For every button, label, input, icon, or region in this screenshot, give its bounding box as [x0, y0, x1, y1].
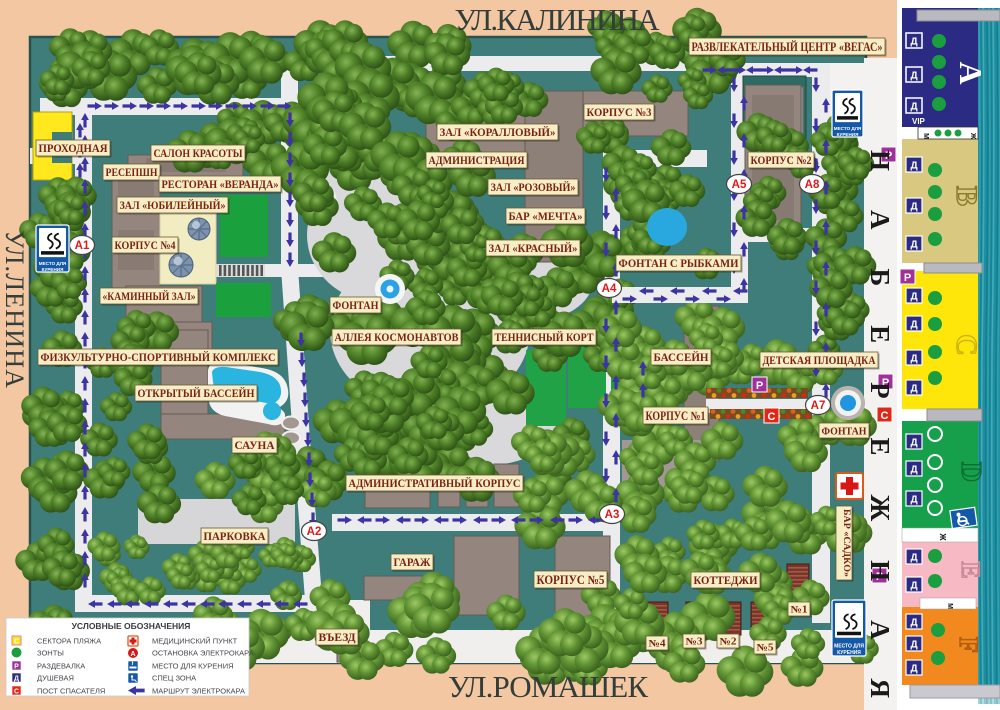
svg-text:КОРПУС №1: КОРПУС №1 — [646, 409, 706, 423]
svg-text:А: А — [953, 61, 989, 84]
svg-text:Ж: Ж — [938, 532, 947, 541]
svg-text:УЛ.ЛЕНИНА: УЛ.ЛЕНИНА — [0, 230, 29, 388]
svg-text:С: С — [14, 688, 19, 695]
svg-text:ЗАЛ «КРАСНЫЙ»: ЗАЛ «КРАСНЫЙ» — [489, 241, 578, 255]
svg-text:VIP: VIP — [912, 117, 926, 126]
svg-text:Ж: Ж — [969, 132, 976, 140]
svg-text:Е: Е — [956, 561, 985, 578]
svg-text:№2: №2 — [720, 637, 737, 648]
svg-text:БАР «САДКО»: БАР «САДКО» — [841, 509, 851, 577]
svg-text:Д: Д — [910, 37, 917, 48]
svg-text:ПАРКОВКА: ПАРКОВКА — [204, 531, 267, 543]
svg-text:А1: А1 — [75, 240, 90, 252]
svg-text:ФОНТАН: ФОНТАН — [333, 300, 379, 312]
svg-text:УСЛОВНЫЕ ОБОЗНАЧЕНИЯ: УСЛОВНЫЕ ОБОЗНАЧЕНИЯ — [72, 621, 191, 631]
svg-text:ЗАЛ «ЮБИЛЕЙНЫЙ»: ЗАЛ «ЮБИЛЕЙНЫЙ» — [120, 198, 226, 212]
svg-text:КУРЕНИЯ: КУРЕНИЯ — [42, 267, 64, 272]
svg-text:ФИЗКУЛЬТУРНО-СПОРТИВНЫЙ КОМПЛЕ: ФИЗКУЛЬТУРНО-СПОРТИВНЫЙ КОМПЛЕКС — [41, 350, 276, 364]
svg-text:М: М — [922, 133, 929, 139]
svg-text:КОРПУС №3: КОРПУС №3 — [587, 107, 652, 119]
svg-text:РЕСТОРАН «ВЕРАНДА»: РЕСТОРАН «ВЕРАНДА» — [162, 179, 279, 191]
svg-text:Д: Д — [910, 664, 917, 675]
svg-text:ЗАЛ «КОРАЛЛОВЫЙ»: ЗАЛ «КОРАЛЛОВЫЙ» — [440, 125, 556, 139]
svg-text:Р: Р — [14, 663, 19, 670]
svg-text:Д: Д — [910, 161, 917, 172]
svg-text:ЗОНТЫ: ЗОНТЫ — [37, 649, 64, 658]
svg-text:С: С — [768, 411, 776, 423]
svg-text:«КАМИННЫЙ ЗАЛ»: «КАМИННЫЙ ЗАЛ» — [103, 289, 196, 303]
svg-text:РАЗДЕВАЛКА: РАЗДЕВАЛКА — [37, 662, 85, 671]
svg-text:АЛЛЕЯ КОСМОНАВТОВ: АЛЛЕЯ КОСМОНАВТОВ — [335, 332, 459, 344]
svg-text:МЕДИЦИНСКИЙ ПУНКТ: МЕДИЦИНСКИЙ ПУНКТ — [152, 637, 238, 646]
svg-text:Д: Д — [910, 618, 917, 629]
svg-text:Д: Д — [910, 581, 917, 592]
svg-text:САУНА: САУНА — [235, 440, 276, 452]
svg-text:МЕСТО ДЛЯ КУРЕНИЯ: МЕСТО ДЛЯ КУРЕНИЯ — [152, 662, 234, 671]
svg-text:Д: Д — [910, 354, 917, 365]
svg-text:Д: Д — [910, 495, 917, 506]
svg-text:АДМИНИСТРАТИВНЫЙ КОРПУС: АДМИНИСТРАТИВНЫЙ КОРПУС — [349, 476, 521, 490]
svg-text:А4: А4 — [602, 283, 617, 295]
svg-text:ДЕТСКАЯ ПЛОЩАДКА: ДЕТСКАЯ ПЛОЩАДКА — [763, 355, 877, 367]
svg-text:ОСТАНОВКА ЭЛЕКТРОКАРА: ОСТАНОВКА ЭЛЕКТРОКАРА — [152, 649, 254, 658]
svg-text:D: D — [955, 462, 986, 482]
svg-text:А2: А2 — [307, 526, 322, 538]
svg-text:САЛОН КРАСОТЫ: САЛОН КРАСОТЫ — [154, 148, 244, 160]
svg-text:ПОСТ СПАСАТЕЛЯ: ПОСТ СПАСАТЕЛЯ — [37, 687, 105, 696]
svg-text:Д: Д — [910, 553, 917, 564]
svg-text:Д: Д — [910, 102, 917, 113]
svg-text:С: С — [881, 410, 889, 422]
svg-text:МЕСТО ДЛЯ: МЕСТО ДЛЯ — [834, 643, 864, 649]
svg-text:№4: №4 — [649, 639, 666, 650]
svg-text:КОРПУС №2: КОРПУС №2 — [751, 155, 812, 167]
svg-text:ТЕННИСНЫЙ КОРТ: ТЕННИСНЫЙ КОРТ — [495, 330, 594, 344]
svg-text:Д: Д — [910, 384, 917, 395]
svg-text:МЕСТО ДЛЯ: МЕСТО ДЛЯ — [39, 261, 66, 266]
svg-text:КОРПУС №4: КОРПУС №4 — [115, 240, 176, 252]
svg-text:ДУШЕВАЯ: ДУШЕВАЯ — [37, 674, 74, 683]
svg-text:КОТТЕДЖИ: КОТТЕДЖИ — [694, 575, 758, 587]
svg-text:А8: А8 — [805, 179, 820, 191]
svg-text:А3: А3 — [605, 509, 620, 521]
svg-text:М: М — [946, 603, 953, 609]
svg-text:РЕСЕПШН: РЕСЕПШН — [106, 167, 158, 179]
svg-text:Д: Д — [910, 71, 917, 82]
svg-text:РАЗВЛЕКАТЕЛЬНЫЙ ЦЕНТР «ВЕГАС»: РАЗВЛЕКАТЕЛЬНЫЙ ЦЕНТР «ВЕГАС» — [692, 40, 883, 54]
svg-text:ЗАЛ «РОЗОВЫЙ»: ЗАЛ «РОЗОВЫЙ» — [491, 180, 576, 194]
svg-text:БАР «МЕЧТА»: БАР «МЕЧТА» — [509, 211, 583, 223]
svg-text:Д: Д — [910, 292, 917, 303]
svg-text:МЕСТО ДЛЯ: МЕСТО ДЛЯ — [834, 126, 861, 131]
svg-text:А7: А7 — [811, 400, 826, 412]
svg-text:№1: №1 — [791, 605, 808, 616]
svg-text:Д: Д — [910, 640, 917, 651]
svg-text:Д: Д — [14, 675, 19, 682]
svg-text:№3: №3 — [686, 637, 703, 648]
svg-text:Р: Р — [756, 380, 763, 392]
svg-text:Р: Р — [904, 272, 911, 284]
svg-text:ФОНТАН: ФОНТАН — [822, 426, 867, 437]
svg-text:Д: Д — [910, 202, 917, 213]
svg-text:Д: Д — [910, 320, 917, 331]
svg-text:ВЪЕЗД: ВЪЕЗД — [319, 632, 356, 644]
svg-text:Д: Д — [910, 240, 917, 251]
svg-text:КОРПУС №5: КОРПУС №5 — [537, 573, 605, 587]
svg-text:ФОНТАН С РЫБКАМИ: ФОНТАН С РЫБКАМИ — [619, 258, 739, 270]
svg-text:УЛ.РОМАШЕК: УЛ.РОМАШЕК — [448, 669, 648, 704]
svg-text:ПРОХОДНАЯ: ПРОХОДНАЯ — [39, 143, 109, 155]
svg-text:С: С — [950, 334, 983, 356]
svg-text:СЕКТОРА ПЛЯЖА: СЕКТОРА ПЛЯЖА — [37, 637, 101, 646]
svg-text:№5: №5 — [757, 643, 774, 654]
svg-text:КУРЕНИЯ: КУРЕНИЯ — [837, 650, 861, 656]
svg-text:С: С — [14, 638, 19, 645]
svg-text:Д: Д — [910, 438, 917, 449]
svg-text:В: В — [950, 186, 983, 206]
svg-text:СПЕЦ ЗОНА: СПЕЦ ЗОНА — [152, 674, 196, 683]
svg-text:А: А — [130, 651, 135, 658]
svg-text:АДМИНИСТРАЦИЯ: АДМИНИСТРАЦИЯ — [429, 155, 526, 167]
svg-text:ГАРАЖ: ГАРАЖ — [394, 557, 432, 569]
svg-text:Д: Д — [910, 465, 917, 476]
svg-text:УЛ.КАЛИНИНА: УЛ.КАЛИНИНА — [455, 2, 661, 37]
svg-text:БАССЕЙН: БАССЕЙН — [654, 350, 709, 364]
svg-text:F: F — [954, 637, 983, 653]
svg-text:ОТКРЫТЫЙ БАССЕЙН: ОТКРЫТЫЙ БАССЕЙН — [138, 386, 255, 400]
svg-text:КУРЕНИЯ: КУРЕНИЯ — [837, 132, 859, 137]
svg-text:А5: А5 — [732, 179, 747, 191]
svg-text:МАРШРУТ ЭЛЕКТРОКАРА: МАРШРУТ ЭЛЕКТРОКАРА — [152, 687, 245, 696]
